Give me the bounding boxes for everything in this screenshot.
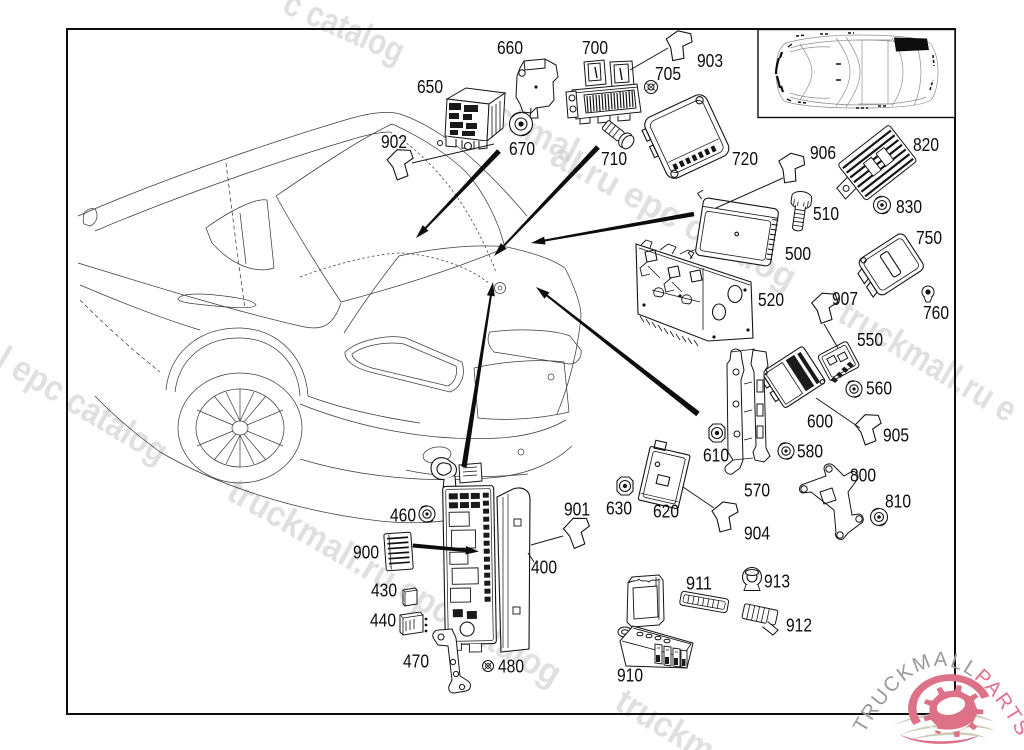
svg-text:630: 630 [606,498,632,519]
svg-text:800: 800 [850,465,876,486]
svg-text:700: 700 [582,37,608,58]
svg-text:560: 560 [866,378,892,399]
svg-text:430: 430 [371,580,397,601]
svg-text:810: 810 [885,491,911,512]
svg-text:570: 570 [744,480,770,501]
svg-text:400: 400 [531,557,557,578]
svg-text:913: 913 [764,571,790,592]
svg-text:460: 460 [390,505,416,526]
svg-text:906: 906 [810,142,836,163]
svg-text:520: 520 [758,289,784,310]
svg-text:480: 480 [498,656,524,677]
svg-text:760: 760 [923,302,949,323]
svg-text:710: 710 [601,148,627,169]
svg-text:903: 903 [697,50,723,71]
svg-text:910: 910 [617,665,643,686]
svg-text:670: 670 [509,138,535,159]
svg-text:820: 820 [913,134,939,155]
svg-text:907: 907 [832,288,858,309]
svg-text:705: 705 [655,63,681,84]
svg-text:911: 911 [686,573,712,594]
svg-text:750: 750 [916,227,942,248]
svg-text:440: 440 [370,610,396,631]
svg-text:600: 600 [807,411,833,432]
svg-text:500: 500 [785,243,811,264]
svg-text:901: 901 [564,499,590,520]
svg-text:510: 510 [813,203,839,224]
svg-text:470: 470 [403,651,429,672]
svg-text:610: 610 [703,445,729,466]
svg-text:620: 620 [653,501,679,522]
svg-text:830: 830 [896,196,922,217]
svg-text:650: 650 [417,76,443,97]
svg-text:902: 902 [381,131,407,152]
svg-text:660: 660 [497,37,523,58]
svg-text:720: 720 [732,148,758,169]
svg-text:900: 900 [353,542,379,563]
svg-text:905: 905 [883,425,909,446]
svg-text:912: 912 [786,615,812,636]
svg-text:580: 580 [797,441,823,462]
svg-text:550: 550 [857,329,883,350]
svg-text:904: 904 [744,523,770,544]
